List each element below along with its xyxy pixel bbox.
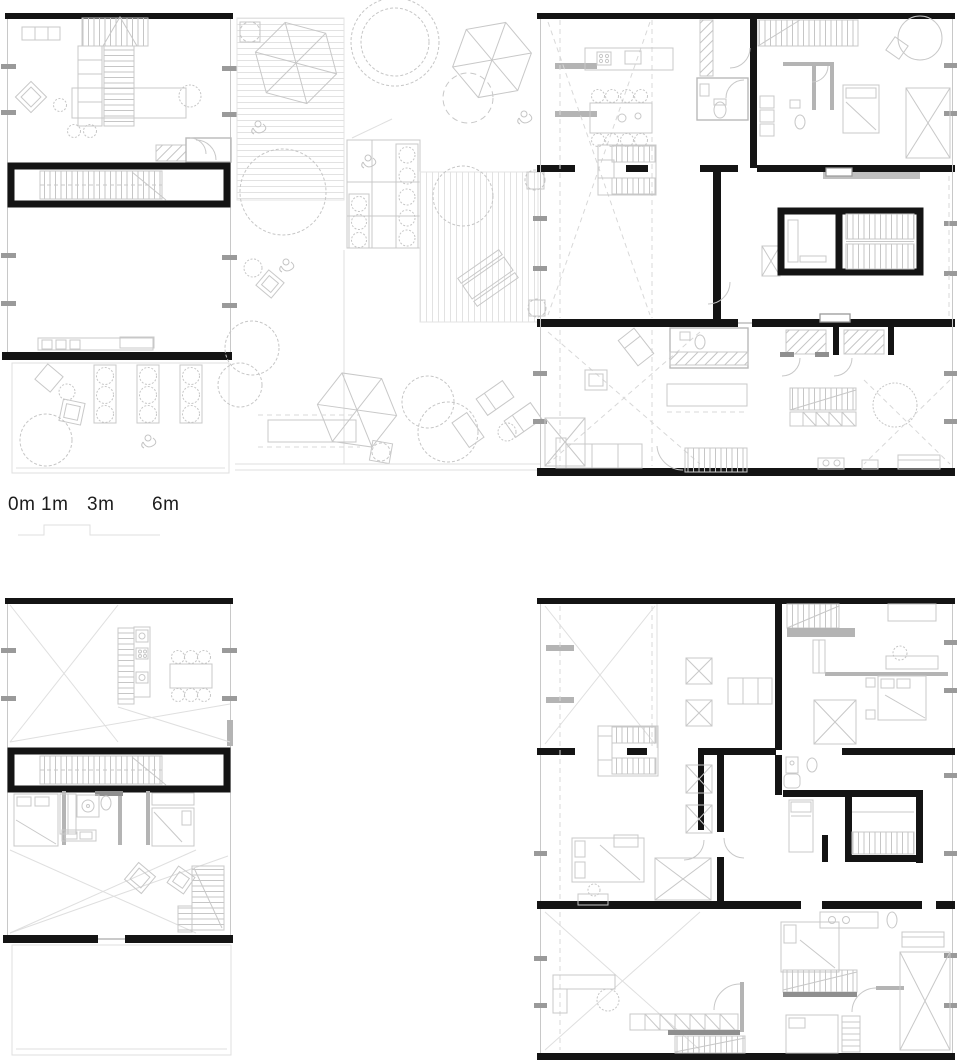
umbrella xyxy=(313,370,402,450)
closet-row xyxy=(630,1014,738,1030)
toilet xyxy=(101,796,111,810)
sofa xyxy=(728,678,772,704)
bed xyxy=(14,794,58,846)
scale-bar: 0m 1m 3m 6m xyxy=(0,494,220,546)
person-figure xyxy=(142,435,156,448)
floor-plan-sheet: 0m 1m 3m 6m xyxy=(0,0,960,1063)
sofa xyxy=(556,438,642,468)
pergola xyxy=(347,140,420,248)
stair-up xyxy=(82,18,148,46)
scale-label-3m: 3m xyxy=(87,494,114,516)
bedroom-strip xyxy=(14,791,194,846)
lounge-chairs xyxy=(452,381,542,448)
bench xyxy=(268,420,356,442)
window-ticks xyxy=(534,640,957,1008)
upper-left-unit-plan xyxy=(1,13,237,473)
kitchen-island xyxy=(667,384,747,406)
gallery-stair-band xyxy=(11,751,227,789)
lower-apartment xyxy=(545,328,748,472)
stair-down xyxy=(685,448,747,472)
scale-label-1m: 1m xyxy=(41,494,68,516)
terrace xyxy=(12,945,231,1055)
stair-core xyxy=(781,209,920,274)
bed xyxy=(786,1015,838,1053)
closet-row xyxy=(790,412,856,426)
party-wall xyxy=(2,352,232,360)
dining-table xyxy=(590,90,652,147)
planter-rows xyxy=(94,365,202,423)
roof-garden-plan xyxy=(218,0,546,470)
counter xyxy=(553,975,615,989)
round-table xyxy=(898,16,942,60)
closet-hatch xyxy=(156,145,186,161)
desk xyxy=(888,604,936,621)
core-bed xyxy=(789,800,813,852)
wardrobe xyxy=(906,88,950,158)
unit-bottom-right xyxy=(781,912,950,1053)
unit-bottom-left xyxy=(545,835,745,1053)
round-table xyxy=(873,383,917,427)
core-stair xyxy=(852,832,914,854)
wardrobe xyxy=(545,418,585,466)
tree xyxy=(20,414,72,466)
scale-label-0m: 0m xyxy=(8,494,35,516)
scale-label-6m: 6m xyxy=(152,494,179,516)
wardrobe xyxy=(655,858,711,900)
lower-right-rooms xyxy=(780,327,950,469)
bed xyxy=(878,676,926,720)
wardrobe xyxy=(900,952,950,1050)
bed xyxy=(843,85,879,133)
deck-vertical xyxy=(420,172,538,322)
lower-left-unit-plan xyxy=(1,598,237,1055)
stair-flight xyxy=(118,628,134,704)
bed xyxy=(572,838,644,882)
lower-right-units-plan xyxy=(534,598,957,1060)
upper-right-units-plan xyxy=(533,13,957,476)
stair-flight xyxy=(104,46,134,126)
bedroom-unit-top-right xyxy=(787,604,948,744)
shower xyxy=(77,795,99,817)
wardrobe xyxy=(814,700,856,744)
bathroom xyxy=(697,78,748,120)
bed xyxy=(152,808,194,846)
deck-horizontal xyxy=(237,18,344,200)
gallery-stair-band xyxy=(11,166,227,204)
lounge-chair xyxy=(618,328,653,366)
bed xyxy=(781,922,839,972)
bathroom xyxy=(186,138,231,162)
umbrella xyxy=(447,19,538,101)
tree xyxy=(351,0,439,86)
dining-table xyxy=(170,651,212,702)
ladder-wardrobe xyxy=(842,1016,860,1052)
bathroom xyxy=(670,328,748,368)
kitchen-strip xyxy=(134,627,150,697)
terrace xyxy=(12,363,229,473)
window xyxy=(820,314,850,322)
